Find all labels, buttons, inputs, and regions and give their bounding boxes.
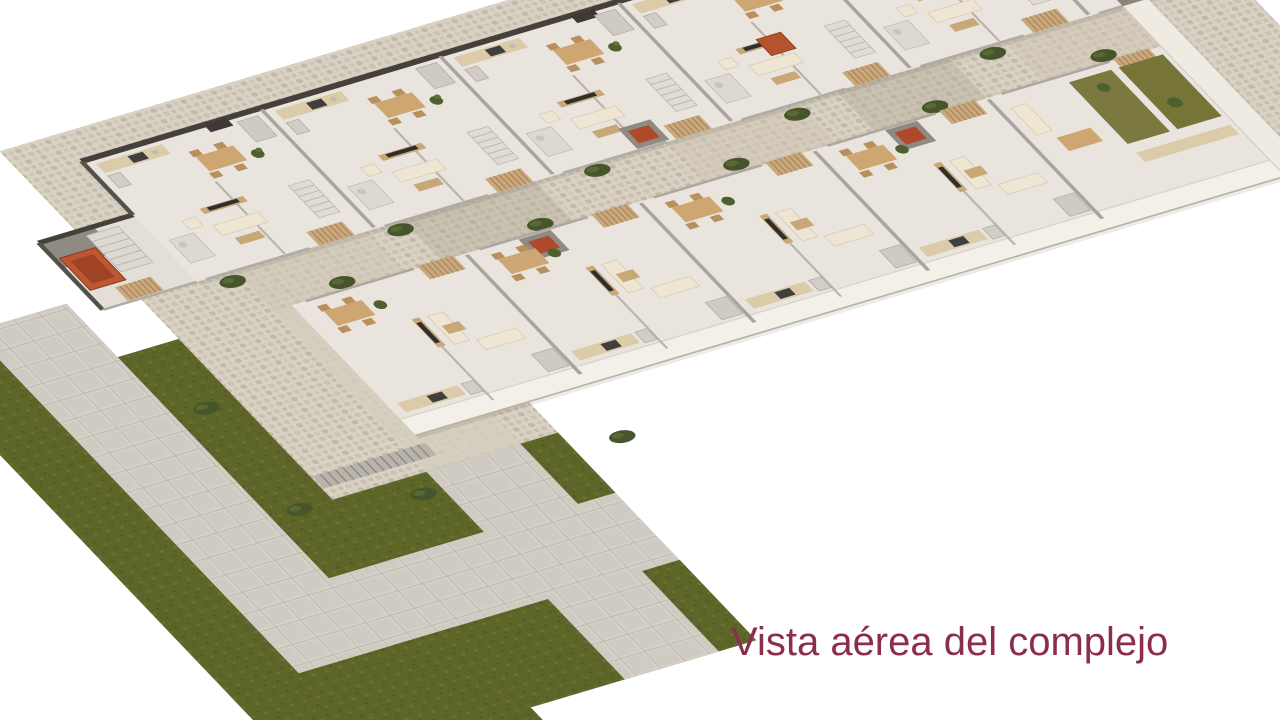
caption: Vista aérea del complejo [731, 620, 1251, 664]
aerial-complex-render [0, 0, 1280, 720]
slide: Vista aérea del complejo [0, 0, 1280, 720]
site [0, 0, 1280, 720]
